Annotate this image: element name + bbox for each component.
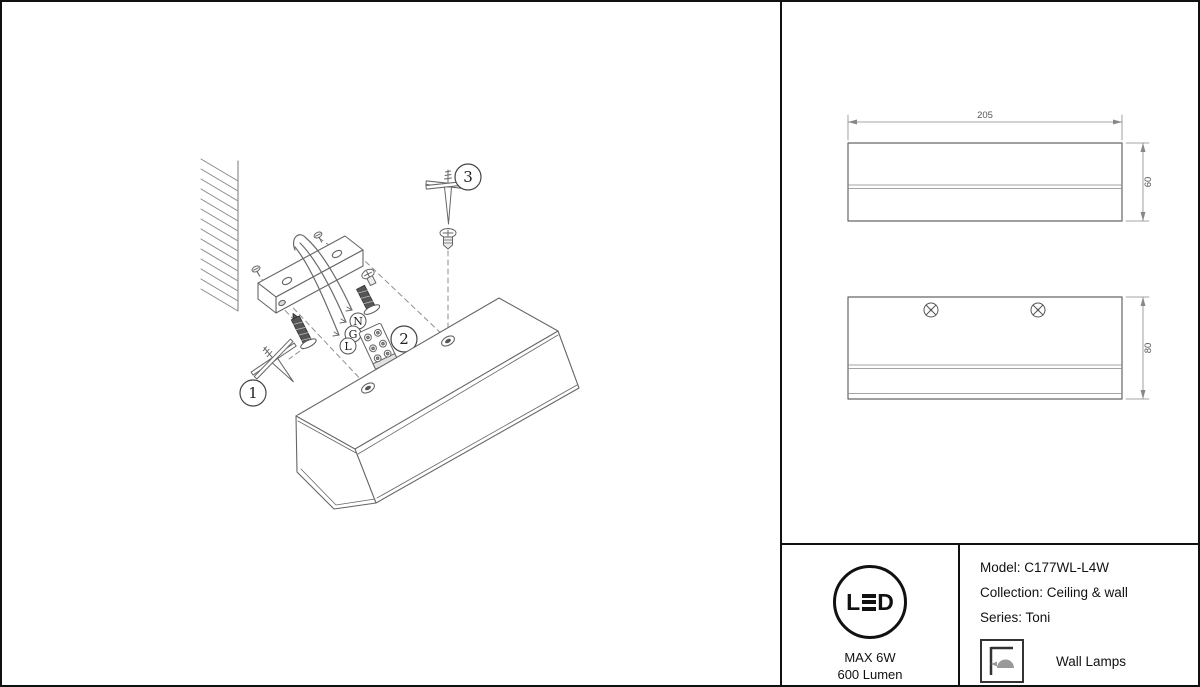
svg-text:L: L (344, 340, 352, 353)
bracket-screw-left (251, 265, 263, 278)
svg-text:2: 2 (399, 330, 409, 348)
series-label: Series: Toni (980, 605, 1198, 630)
callout-1: 1 (240, 380, 266, 406)
anchor-screw-right (353, 283, 381, 316)
collection-label: Collection: Ceiling & wall (980, 580, 1198, 605)
max-power-label: MAX 6W (837, 649, 902, 666)
phillips-screw (360, 267, 379, 287)
wire-label-l: L (340, 338, 356, 354)
svg-text:1: 1 (248, 384, 258, 402)
dim-width-label: 205 (977, 110, 993, 121)
category-row: Wall Lamps (980, 639, 1198, 683)
spec-sheet: N G L (0, 0, 1200, 687)
product-meta-cell: Model: C177WL-L4W Collection: Ceiling & … (960, 545, 1198, 685)
dim-height60-label: 60 (1143, 177, 1154, 188)
category-label: Wall Lamps (1056, 654, 1126, 669)
dim-height80-label: 80 (1143, 343, 1154, 354)
front-view-drawing: 80 (848, 297, 1154, 399)
category-icon-box (980, 639, 1024, 683)
top-view-drawing: 205 60 (848, 110, 1154, 221)
svg-text:3: 3 (463, 168, 473, 186)
wall-lamp-icon (985, 644, 1019, 678)
led-spec-cell: L D MAX 6W 600 Lumen (782, 545, 960, 685)
lumen-label: 600 Lumen (837, 666, 902, 683)
front-screw-left (924, 303, 938, 317)
front-screw-right (1031, 303, 1045, 317)
led-logo: L D (833, 565, 907, 639)
bracket-screw-right (313, 231, 325, 244)
info-panel: L D MAX 6W 600 Lumen Model: C177WL-L4W C… (782, 543, 1198, 685)
model-label: Model: C177WL-L4W (980, 555, 1198, 580)
led-letter-d: D (877, 589, 894, 616)
anchor-3-screw (440, 229, 456, 250)
wall-hatch (201, 159, 238, 311)
led-letter-e-bars (862, 594, 876, 611)
led-wordmark: L D (846, 589, 894, 616)
led-letter-l: L (846, 589, 860, 616)
callout-3: 3 (455, 164, 481, 190)
